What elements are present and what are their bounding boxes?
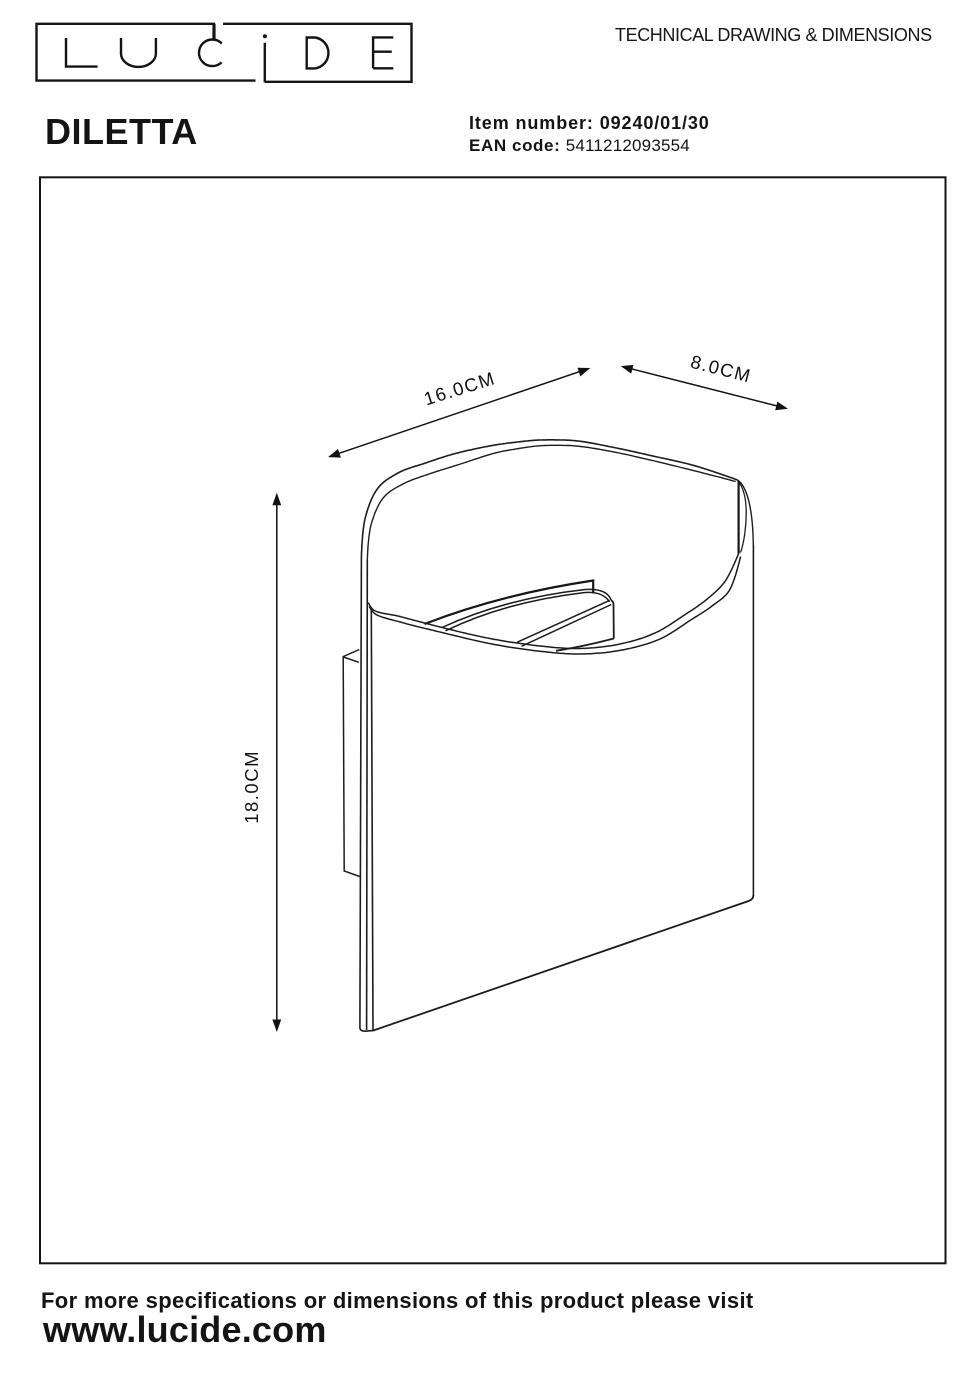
svg-text:8.0CM: 8.0CM — [688, 351, 753, 387]
svg-text:18.0CM: 18.0CM — [241, 750, 262, 824]
